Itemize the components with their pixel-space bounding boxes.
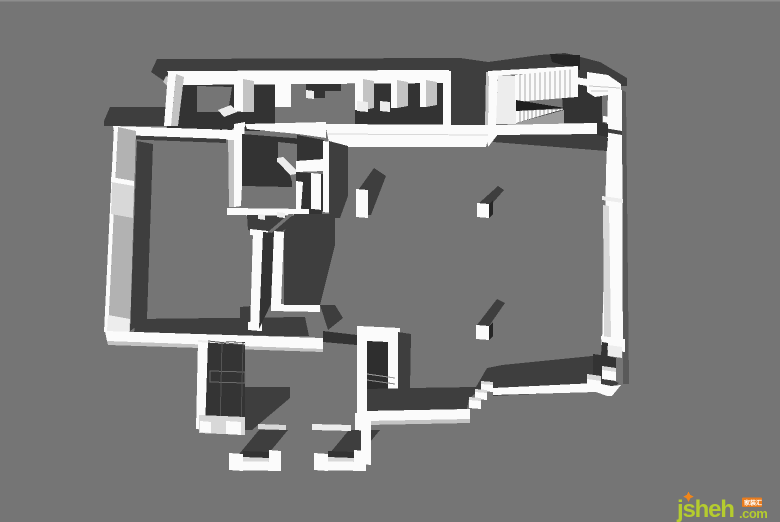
svg-text:.com: .com [739,506,767,521]
svg-text:jsheh: jsheh [676,496,734,522]
